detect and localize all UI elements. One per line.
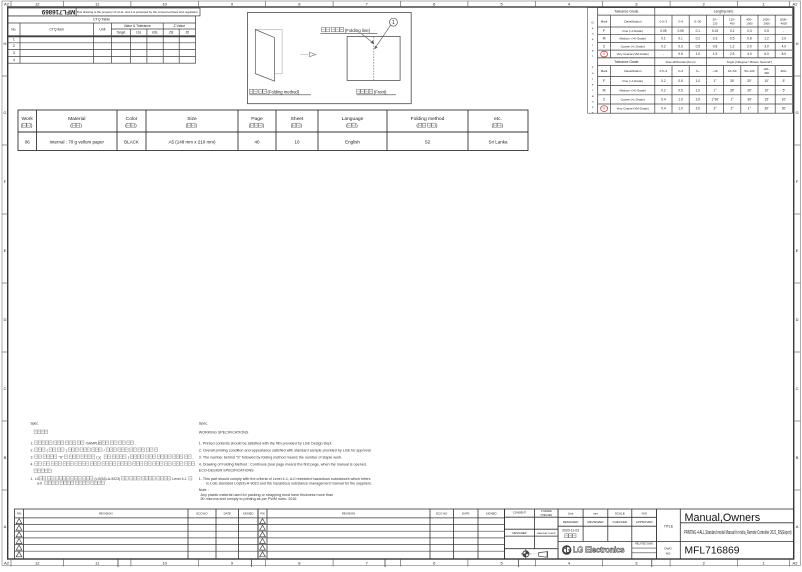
svg-text:Size: Size [187, 116, 197, 122]
svg-text:Very Coarse-(VM-Grade): Very Coarse-(VM-Grade) [617, 52, 649, 56]
svg-text:Angle (±Degree° Minute' Second: Angle (±Degree° Minute' Second”) [727, 60, 773, 64]
svg-text:Very Coarse-(VM-Grade): Very Coarse-(VM-Grade) [617, 107, 649, 111]
svg-text:0.5: 0.5 [678, 88, 683, 92]
svg-text:3: 3 [13, 51, 15, 55]
svg-text:mm: mm [593, 512, 599, 516]
svg-text:4.0: 4.0 [747, 52, 752, 56]
svg-text:2.0: 2.0 [747, 44, 752, 48]
svg-text:4. Drawing of Folding Method :: 4. Drawing of Folding Method : Continous… [199, 462, 367, 466]
svg-text:Length(±mm): Length(±mm) [714, 10, 734, 14]
svg-text:ECO-DESIGN SPECIFICATIONS: ECO-DESIGN SPECIFICATIONS [199, 469, 254, 473]
svg-text:English: English [345, 139, 360, 144]
svg-text:4.: 4. [31, 462, 34, 466]
svg-text:10': 10' [765, 79, 770, 83]
svg-text:1: 1 [392, 20, 395, 26]
svg-text:Fine (≈J-Grade): Fine (≈J-Grade) [623, 79, 643, 83]
svg-text:1.2: 1.2 [764, 37, 769, 41]
svg-text:50 microns and comply to print: 50 microns and comply to printing as per… [201, 497, 297, 501]
svg-text:0.5: 0.5 [764, 29, 769, 33]
svg-text:0.1: 0.1 [661, 37, 666, 41]
svg-text:a: a [592, 49, 594, 53]
svg-text:10: 10 [294, 139, 300, 144]
svg-text:Zst: Zst [169, 30, 174, 34]
svg-text:2. Overall printing condition: 2. Overall printing condition and appear… [199, 448, 371, 452]
svg-text:6~30: 6~30 [694, 20, 701, 24]
svg-text:1.0: 1.0 [696, 52, 701, 56]
svg-text:S2: S2 [425, 139, 431, 144]
svg-text:etc.: etc. [494, 116, 502, 122]
svg-text:0.5~3: 0.5~3 [660, 69, 668, 73]
svg-text:0.2: 0.2 [661, 44, 666, 48]
svg-text:0.5: 0.5 [730, 37, 735, 41]
svg-text:G: G [796, 110, 799, 115]
svg-text:CHECKED: CHECKED [540, 514, 552, 517]
svg-text:Page: Page [251, 116, 263, 122]
svg-text:B: B [4, 455, 7, 460]
svg-text:"S": "S" [58, 455, 64, 459]
svg-text:400: 400 [764, 71, 769, 75]
svg-text:1000: 1000 [746, 22, 753, 26]
svg-text:-: - [663, 52, 664, 56]
svg-text:DESIGNER: DESIGNER [512, 531, 526, 535]
svg-text:2.0: 2.0 [696, 107, 701, 111]
svg-text:30': 30' [730, 79, 735, 83]
svg-text:Manual,Owners: Manual,Owners [685, 512, 761, 524]
svg-text:e: e [592, 26, 594, 30]
svg-text:0.2: 0.2 [661, 79, 666, 83]
svg-text:4.0: 4.0 [782, 44, 787, 48]
svg-text:0.2: 0.2 [661, 88, 666, 92]
svg-text:M: M [603, 88, 606, 92]
svg-text:DWG.: DWG. [664, 546, 673, 550]
svg-text:Classification: Classification [624, 69, 642, 73]
svg-text:Round/Chamfer(±mm): Round/Chamfer(±mm) [666, 60, 696, 64]
svg-text:6~: 6~ [696, 69, 700, 73]
svg-text:D: D [796, 317, 799, 322]
svg-text:): ) [128, 455, 129, 459]
svg-text:This drawing is the property o: This drawing is the property of LG E, an… [77, 10, 199, 14]
svg-text:0.5: 0.5 [678, 52, 683, 56]
svg-text:e: e [592, 83, 594, 87]
svg-text:0.5~3: 0.5~3 [660, 20, 668, 24]
svg-text:to LGE standard LG(63)-A-9023: to LGE standard LG(63)-A-9023 and the ha… [206, 482, 372, 486]
svg-text:C: C [3, 386, 6, 391]
svg-text:e: e [592, 111, 594, 115]
svg-text:1.0: 1.0 [678, 98, 683, 102]
svg-text:1: 1 [13, 37, 15, 41]
svg-text:1. Printed contents should be: 1. Printed contents should be satisfied … [199, 441, 333, 445]
svg-text:0.8: 0.8 [713, 44, 718, 48]
svg-text:REVISION: REVISION [99, 512, 112, 516]
svg-text:1.: 1. [31, 477, 34, 481]
svg-text:o: o [592, 71, 594, 75]
svg-text:r: r [592, 88, 593, 92]
svg-text:DATE: DATE [462, 512, 469, 516]
svg-text:0.4: 0.4 [661, 107, 666, 111]
svg-text:0.8: 0.8 [747, 37, 752, 41]
svg-text:A2: A2 [4, 1, 10, 6]
svg-text:Note :: Note : [199, 488, 209, 492]
svg-text:A2: A2 [793, 560, 799, 565]
svg-text:Coarse (≈L-Grade): Coarse (≈L-Grade) [621, 98, 645, 102]
svg-text:Unit: Unit [568, 512, 574, 516]
svg-text:5': 5' [783, 79, 786, 83]
svg-text:2.0: 2.0 [782, 37, 787, 41]
svg-text:120: 120 [713, 22, 718, 26]
svg-text:.: . [106, 482, 107, 486]
svg-text:TITLE: TITLE [664, 524, 674, 528]
svg-text:Fine (≈J-Grade): Fine (≈J-Grade) [623, 29, 643, 33]
svg-text:0.2: 0.2 [730, 29, 735, 33]
svg-text:G: G [3, 110, 6, 115]
svg-text:V-GRADE: V-GRADE [541, 510, 552, 513]
svg-text:D: D [3, 317, 6, 322]
svg-text:10: 10 [162, 560, 167, 565]
svg-text:Medium -(≈K-Grade): Medium -(≈K-Grade) [619, 37, 646, 41]
svg-text:30': 30' [747, 98, 752, 102]
svg-text:0.3: 0.3 [678, 44, 683, 48]
svg-text:2.0: 2.0 [696, 98, 701, 102]
svg-text:CONSENT: CONSENT [513, 511, 526, 515]
svg-text:10~50: 10~50 [728, 69, 737, 73]
svg-text:2020-11-03: 2020-11-03 [562, 528, 579, 532]
svg-text:e: e [592, 37, 594, 41]
svg-text:Level 4-1: Level 4-1 [172, 477, 186, 481]
svg-text:Sri Lanka: Sri Lanka [488, 139, 508, 144]
svg-text:1.: 1. [31, 441, 34, 445]
svg-text:20': 20' [747, 88, 752, 92]
svg-text:3.0: 3.0 [764, 44, 769, 48]
svg-text:1.0: 1.0 [696, 88, 701, 92]
svg-text:10: 10 [162, 1, 167, 6]
svg-text:2.: 2. [31, 448, 34, 452]
svg-text:Color: Color [126, 116, 138, 122]
svg-text:Unit: Unit [99, 27, 105, 31]
svg-text:Z-Value: Z-Value [173, 24, 185, 28]
svg-text:3. The number behind "S" follo: 3. The number behind "S" followed by fol… [199, 455, 342, 459]
svg-text:A5 (148 mm x 210 mm): A5 (148 mm x 210 mm) [168, 139, 216, 144]
svg-text:2000: 2000 [763, 22, 770, 26]
svg-text:Folding method: Folding method [411, 116, 445, 122]
svg-text:0.05: 0.05 [660, 29, 666, 33]
svg-text:A: A [796, 524, 799, 529]
svg-text:(LG(63)-A-9023): (LG(63)-A-9023) [95, 477, 121, 481]
svg-text:Coarse (≈L-Grade): Coarse (≈L-Grade) [621, 44, 645, 48]
svg-text:4000: 4000 [781, 22, 788, 26]
svg-text:Material: Material [68, 116, 85, 122]
svg-text:REVIEWED: REVIEWED [587, 520, 604, 524]
svg-text:/SAMPLE: /SAMPLE [86, 441, 102, 445]
svg-text:5': 5' [783, 88, 786, 92]
svg-text:0.5: 0.5 [678, 79, 683, 83]
svg-text:A2: A2 [4, 560, 10, 565]
svg-text:P/N: P/N [260, 512, 264, 516]
svg-text:0.3: 0.3 [713, 37, 718, 41]
svg-text:E: E [4, 248, 7, 253]
svg-text:LG Electronics: LG Electronics [573, 546, 625, 555]
svg-text:Medium -(≈K-Grade): Medium -(≈K-Grade) [619, 88, 646, 92]
svg-text:0.1: 0.1 [696, 29, 701, 33]
svg-text:.: . [159, 448, 160, 452]
svg-text:0.2: 0.2 [696, 37, 701, 41]
svg-text:.: . [135, 441, 136, 445]
svg-text:DATE: DATE [224, 512, 231, 516]
svg-text:1. This part should comply wit: 1. This part should comply with the crit… [199, 477, 371, 481]
svg-text:C: C [796, 386, 799, 391]
svg-text:Zlt: Zlt [186, 30, 190, 34]
svg-text:6.0: 6.0 [764, 52, 769, 56]
svg-text:3~6: 3~6 [678, 69, 683, 73]
svg-text:): ) [66, 448, 67, 452]
svg-text:0.05: 0.05 [677, 29, 683, 33]
svg-text:8.0: 8.0 [782, 52, 787, 56]
svg-text:REVISION: REVISION [342, 512, 355, 516]
svg-text:(Folding method): (Folding method) [268, 89, 300, 94]
svg-text:T: T [592, 66, 594, 70]
svg-text:1.0: 1.0 [678, 107, 683, 111]
svg-text:LSL: LSL [136, 30, 142, 34]
svg-text:r: r [592, 43, 593, 47]
svg-text:400~: 400~ [780, 69, 787, 73]
svg-text:P/N: P/N [17, 512, 21, 516]
svg-text:Value & Tolerance: Value & Tolerance [124, 24, 151, 28]
svg-text:2: 2 [13, 44, 15, 48]
svg-text:10': 10' [782, 98, 787, 102]
svg-text:F: F [603, 79, 605, 83]
svg-text:F: F [603, 29, 605, 33]
svg-text:Spec.: Spec. [31, 422, 39, 426]
svg-text:CTQ Table: CTQ Table [93, 18, 110, 22]
svg-text:a-II: a-II [37, 482, 42, 486]
svg-text:CTQ Item: CTQ Item [49, 27, 64, 31]
svg-text:E: E [796, 248, 799, 253]
svg-text:A2: A2 [793, 1, 799, 6]
svg-text:n: n [592, 99, 594, 103]
svg-text:CHECKED: CHECKED [612, 520, 628, 524]
svg-text:Mark: Mark [601, 69, 608, 73]
svg-text:Any plastic material used for: Any plastic material used for packing or… [201, 493, 334, 497]
svg-text:30': 30' [730, 88, 735, 92]
svg-text:a: a [592, 94, 594, 98]
svg-text:BLACK: BLACK [124, 139, 139, 144]
svg-text:H: H [796, 41, 799, 46]
svg-text:PRNTING 4-ALL,Standard model M: PRNTING 4-ALL,Standard model Manual for … [684, 530, 792, 536]
svg-text:20': 20' [782, 107, 787, 111]
svg-text:~10: ~10 [712, 69, 717, 73]
svg-text:H: H [3, 41, 6, 46]
svg-text:2.5: 2.5 [730, 52, 735, 56]
svg-text:Internal : 70 g vellum paper: Internal : 70 g vellum paper [50, 139, 105, 144]
svg-text:N/S: N/S [642, 512, 647, 516]
svg-text:15': 15' [765, 98, 770, 102]
svg-text:1.5: 1.5 [713, 52, 718, 56]
svg-text:(Folding line): (Folding line) [345, 28, 371, 33]
svg-text:A: A [4, 524, 7, 529]
svg-text:3.: 3. [31, 455, 34, 459]
svg-text:Tolerance Grade: Tolerance Grade [614, 60, 639, 64]
svg-text:DESIGNED: DESIGNED [563, 520, 580, 524]
svg-text:1°30': 1°30' [711, 98, 719, 102]
svg-text:06: 06 [25, 139, 31, 144]
svg-text:0.3: 0.3 [747, 29, 752, 33]
svg-text:0.15: 0.15 [712, 29, 718, 33]
svg-text:50~120: 50~120 [744, 69, 754, 73]
svg-text:RELATED DWG: RELATED DWG [635, 543, 653, 546]
svg-text:12: 12 [35, 560, 40, 565]
svg-text:0.1: 0.1 [678, 37, 683, 41]
svg-text:1.2: 1.2 [730, 44, 735, 48]
svg-text:Language: Language [342, 116, 364, 122]
svg-text:Tolerance Grade: Tolerance Grade [614, 10, 639, 14]
svg-text:MANUFACTURER: MANUFACTURER [537, 532, 556, 535]
svg-text:10': 10' [765, 88, 770, 92]
svg-text:SIGNED: SIGNED [486, 512, 497, 516]
svg-text:M: M [603, 37, 606, 41]
svg-text:n: n [592, 32, 594, 36]
svg-text:/: / [104, 448, 105, 452]
svg-text:Classification: Classification [624, 20, 642, 24]
svg-text:B: B [796, 455, 799, 460]
svg-text:No.: No. [11, 27, 16, 31]
svg-text:Spec.: Spec. [199, 422, 208, 426]
svg-text:(Front): (Front) [374, 89, 387, 94]
svg-text:SIGNED: SIGNED [243, 512, 254, 516]
svg-text:0.4: 0.4 [661, 98, 666, 102]
svg-text:30': 30' [765, 107, 770, 111]
svg-text:APPROVED: APPROVED [636, 520, 654, 524]
svg-text:3~6: 3~6 [678, 20, 683, 24]
svg-text:Work: Work [22, 116, 34, 122]
svg-text:-: - [783, 29, 784, 33]
svg-text:WORKING SPECIFICATIONS: WORKING SPECIFICATIONS [199, 431, 249, 435]
svg-text:40: 40 [254, 139, 260, 144]
svg-text:20': 20' [747, 79, 752, 83]
svg-text:Mark: Mark [601, 20, 608, 24]
svg-text:USL: USL [152, 30, 158, 34]
svg-text:400: 400 [730, 22, 735, 26]
svg-text:MFL716869: MFL716869 [685, 546, 740, 557]
svg-text:ECO NO: ECO NO [196, 512, 208, 516]
svg-text:.: . [196, 462, 197, 466]
svg-text:ECO NO: ECO NO [436, 512, 448, 516]
svg-text:.: . [193, 455, 194, 459]
svg-text:NO.: NO. [666, 552, 672, 556]
svg-text:0.5: 0.5 [696, 44, 701, 48]
svg-text:Target: Target [117, 30, 126, 34]
svg-text:Sheet: Sheet [291, 116, 304, 122]
svg-text:12: 12 [35, 1, 40, 6]
svg-text:SCALE: SCALE [615, 512, 625, 516]
svg-text:MFL716869: MFL716869 [41, 8, 75, 15]
svg-text:1.0: 1.0 [696, 79, 701, 83]
svg-text:4: 4 [13, 58, 15, 62]
